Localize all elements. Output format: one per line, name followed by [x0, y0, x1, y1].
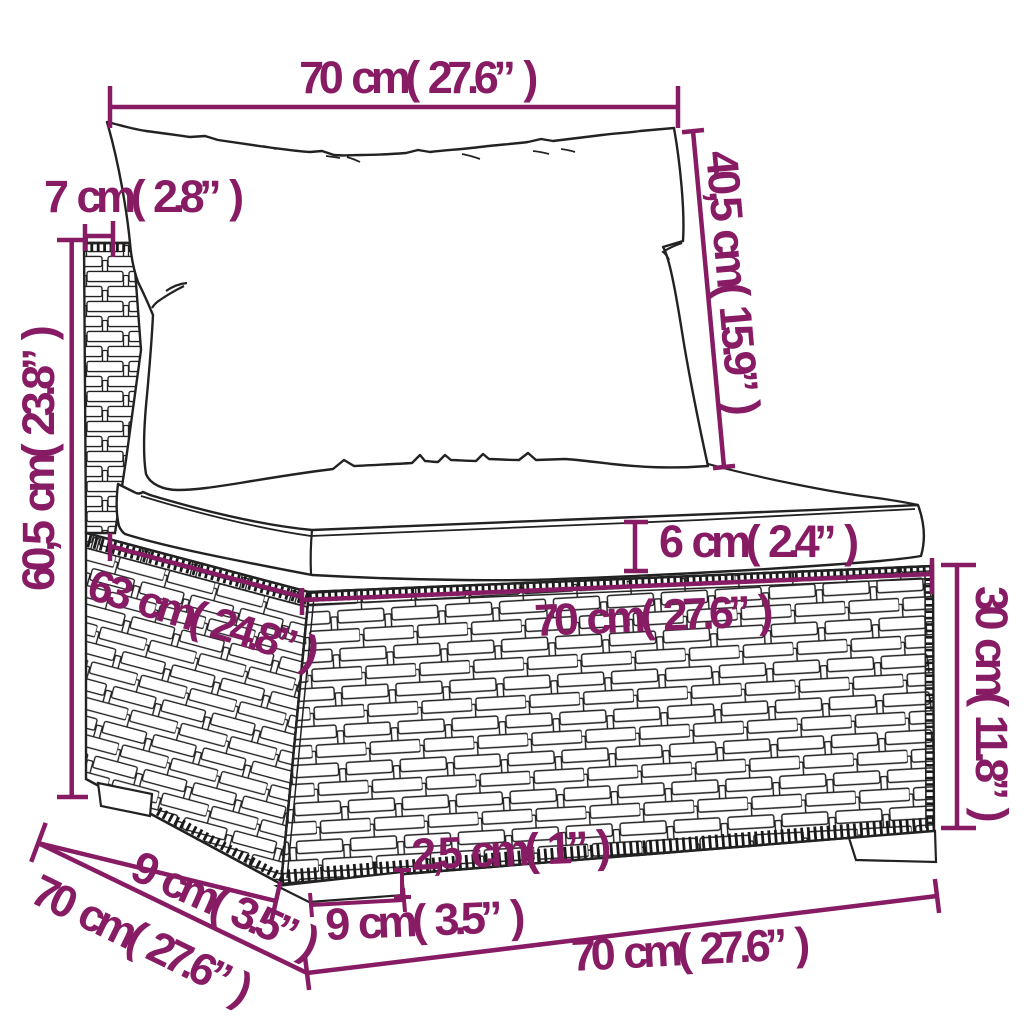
svg-text:70 cm( 27.6” ): 70 cm( 27.6” ) — [299, 52, 536, 103]
svg-text:2,5 cm( 1” ): 2,5 cm( 1” ) — [410, 820, 610, 880]
svg-text:7 cm( 2.8” ): 7 cm( 2.8” ) — [44, 171, 242, 222]
svg-text:6 cm( 2.4” ): 6 cm( 2.4” ) — [659, 516, 857, 567]
svg-text:60,5 cm( 23.8” ): 60,5 cm( 23.8” ) — [13, 327, 64, 591]
svg-text:9 cm( 3.5” ): 9 cm( 3.5” ) — [324, 890, 524, 950]
svg-text:70 cm( 27.6” ): 70 cm( 27.6” ) — [533, 585, 772, 646]
svg-text:30 cm( 11.8” ): 30 cm( 11.8” ) — [966, 586, 1017, 821]
